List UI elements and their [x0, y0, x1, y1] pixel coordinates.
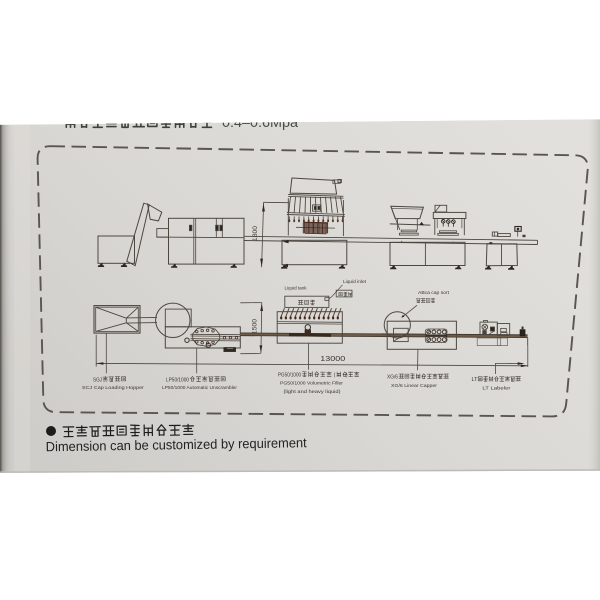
svg-text:LT: LT	[472, 377, 479, 383]
svg-text:): )	[346, 373, 348, 379]
svg-text:Liquid tank: Liquid tank	[285, 285, 308, 290]
svg-text:LT Labeler: LT Labeler	[482, 386, 511, 391]
svg-text:1800: 1800	[252, 226, 259, 241]
svg-text:Liquid inlet: Liquid inlet	[343, 279, 367, 284]
svg-text:LP50/1000 Automatic Unscramble: LP50/1000 Automatic Unscrambler	[162, 385, 237, 390]
svg-text:ABca cap sort: ABca cap sort	[418, 290, 450, 295]
svg-text:(light and heavy liquid): (light and heavy liquid)	[284, 389, 342, 394]
svg-text:LP50/1000: LP50/1000	[166, 377, 189, 383]
svg-text:PG50/1000 Volumetric Filler: PG50/1000 Volumetric Filler	[280, 380, 343, 385]
svg-text:(: (	[334, 373, 336, 379]
svg-text:13000: 13000	[320, 354, 345, 363]
svg-text:PG50/1000: PG50/1000	[278, 373, 301, 379]
svg-text:XG/6 Linear Capper: XG/6 Linear Capper	[391, 383, 437, 388]
svg-text:1500: 1500	[251, 319, 258, 334]
svg-text:SCJ Cap Loading Hopper: SCJ Cap Loading Hopper	[82, 385, 145, 390]
svg-text:XG/6: XG/6	[387, 375, 398, 381]
svg-text:SGJ: SGJ	[93, 377, 102, 383]
